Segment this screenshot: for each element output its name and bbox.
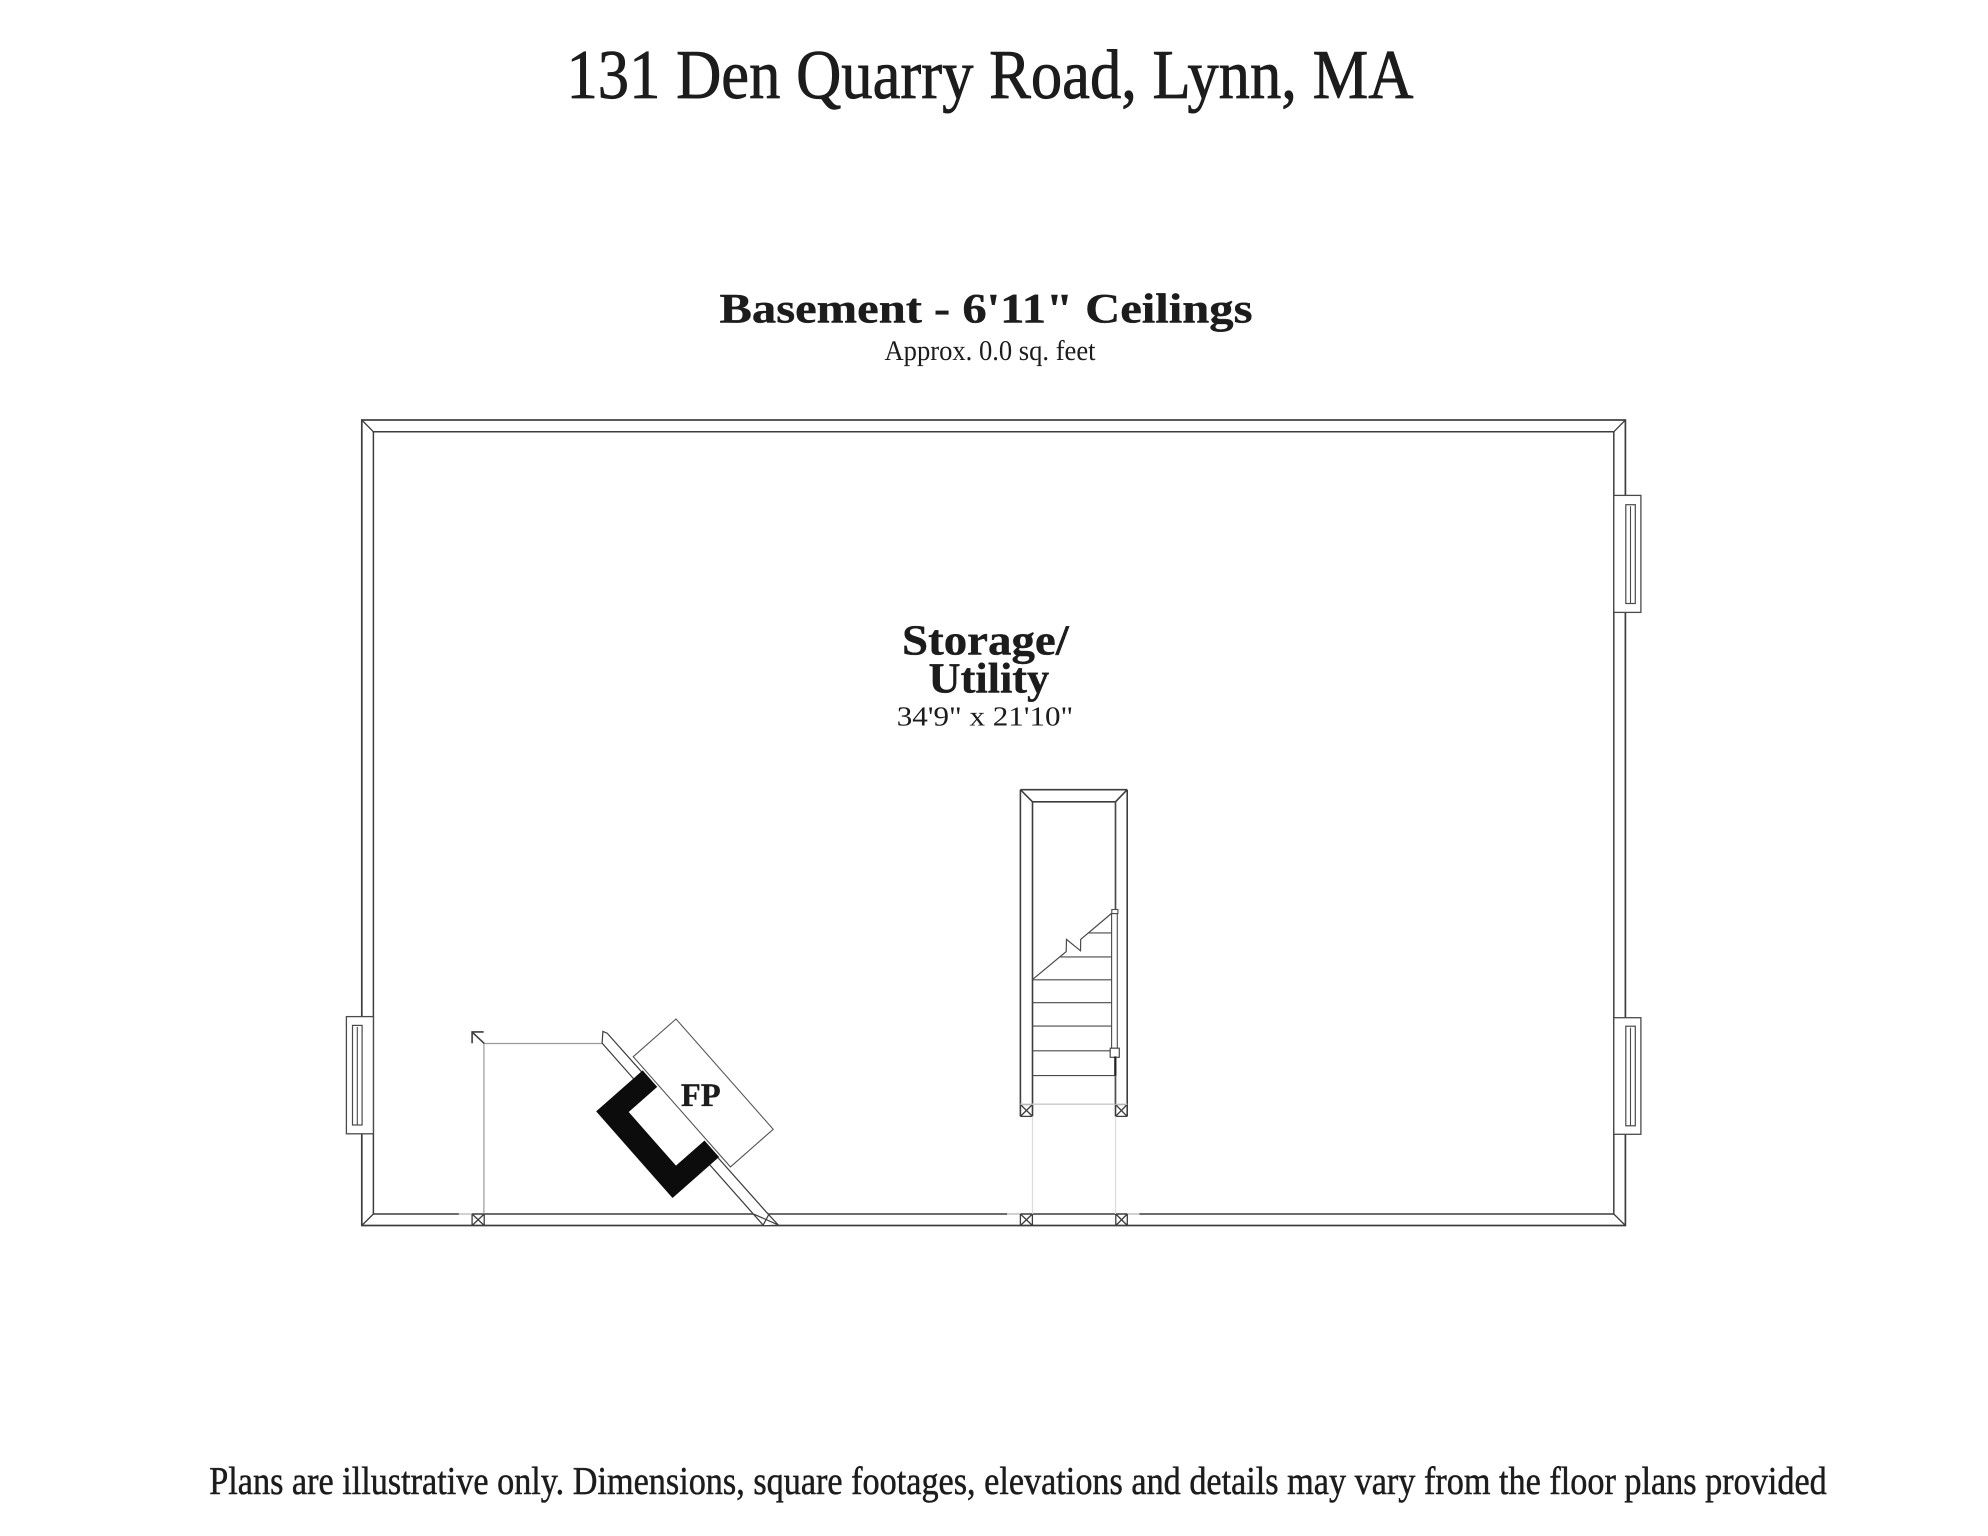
svg-text:Approx. 0.0 sq. feet: Approx. 0.0 sq. feet [885, 336, 1096, 367]
svg-text:Utility: Utility [929, 655, 1050, 702]
svg-text:FP: FP [681, 1078, 721, 1114]
svg-text:Basement - 6'11" Ceilings: Basement - 6'11" Ceilings [720, 286, 1253, 332]
svg-text:131 Den Quarry Road, Lynn, MA: 131 Den Quarry Road, Lynn, MA [567, 37, 1414, 114]
svg-text:34'9" x 21'10": 34'9" x 21'10" [897, 701, 1074, 732]
svg-text:Plans are illustrative only. D: Plans are illustrative only. Dimensions,… [209, 1459, 1827, 1503]
